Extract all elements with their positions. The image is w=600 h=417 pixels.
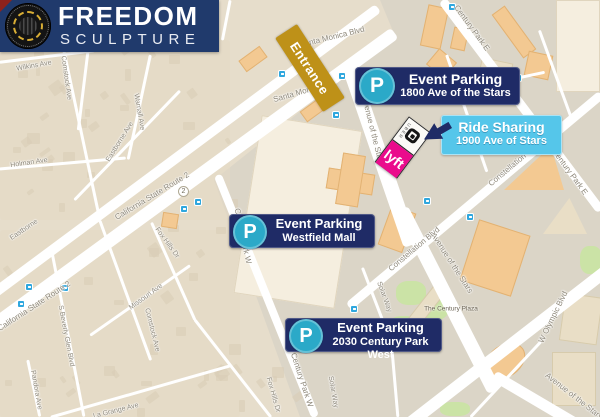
building-footprint <box>183 122 195 130</box>
building-footprint <box>141 381 152 386</box>
building <box>238 46 267 73</box>
building-footprint <box>216 375 228 381</box>
badge-subtitle: 1900 Ave of Stars <box>441 135 562 148</box>
street-label: Fox Hills Dr <box>265 377 282 414</box>
route-2-shield-icon: 2 <box>178 186 189 197</box>
building-footprint <box>149 248 159 257</box>
building-footprint <box>120 105 129 111</box>
badge-title: Event Parking <box>325 321 436 336</box>
building-footprint <box>5 380 12 386</box>
building-footprint <box>59 203 64 212</box>
parking-icon: P <box>289 319 323 353</box>
bus-stop-icon <box>194 198 202 206</box>
badge-title: Event Parking <box>397 71 514 87</box>
building <box>161 212 179 229</box>
ride-sharing-badge: Ride Sharing 1900 Ave of Stars <box>441 115 562 155</box>
badge-title: Event Parking <box>269 217 369 232</box>
freedom-sculpture-logo: FREEDOM SCULPTURE <box>0 0 219 52</box>
badge-subtitle: 1800 Ave of the Stars <box>397 87 514 100</box>
bus-stop-icon <box>332 111 340 119</box>
bus-stop-icon <box>338 72 346 80</box>
logo-subtitle: SCULPTURE <box>60 31 200 48</box>
parking-icon: P <box>359 68 395 104</box>
building-footprint <box>85 109 89 117</box>
logo-title: FREEDOM <box>58 1 199 32</box>
event-parking-map: Santa Monica BlvdSanta MonicaCalifornia … <box>0 0 600 417</box>
freedom-sculpture-emblem-icon <box>5 3 51 49</box>
building <box>556 0 600 92</box>
bus-stop-icon <box>350 305 358 313</box>
bus-stop-icon <box>180 205 188 213</box>
building-footprint <box>189 273 198 281</box>
building-footprint <box>272 367 284 378</box>
event-parking-badge-2030: P Event Parking 2030 Century Park West <box>285 318 442 352</box>
building-footprint <box>137 408 145 417</box>
bus-stop-icon <box>25 283 33 291</box>
poi-century-plaza: The Century Plaza <box>424 306 478 313</box>
building-footprint <box>84 277 93 285</box>
badge-title: Ride Sharing <box>441 119 562 135</box>
bus-stop-icon <box>423 197 431 205</box>
street <box>221 0 231 41</box>
building-footprint <box>239 400 244 411</box>
badge-subtitle: 2030 Century Park West <box>325 336 436 362</box>
building-footprint <box>176 327 186 337</box>
building-footprint <box>114 300 124 304</box>
parking-icon: P <box>233 215 267 249</box>
building-footprint <box>125 69 131 80</box>
building-footprint <box>13 147 22 153</box>
building-footprint <box>216 227 226 234</box>
park-area <box>440 402 470 416</box>
event-parking-badge-westfield: P Event Parking Westfield Mall <box>229 214 375 248</box>
lyft-wordmark: lyft <box>381 146 407 171</box>
bus-stop-icon <box>466 213 474 221</box>
building-footprint <box>229 344 241 355</box>
event-parking-badge-1800: P Event Parking 1800 Ave of the Stars <box>355 67 520 105</box>
building-footprint <box>169 55 180 65</box>
bus-stop-icon <box>278 70 286 78</box>
badge-subtitle: Westfield Mall <box>269 232 369 245</box>
building-footprint <box>27 133 39 144</box>
building-footprint <box>104 366 114 376</box>
